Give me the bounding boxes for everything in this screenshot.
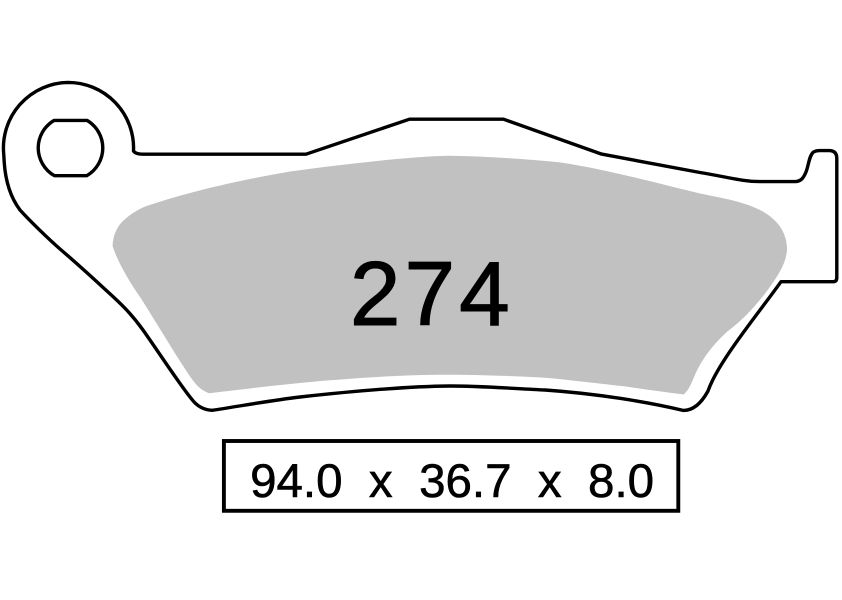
svg-text:274: 274 xyxy=(350,244,514,345)
svg-text:94.0 x 36.7 x 8.0: 94.0 x 36.7 x 8.0 xyxy=(250,455,654,508)
